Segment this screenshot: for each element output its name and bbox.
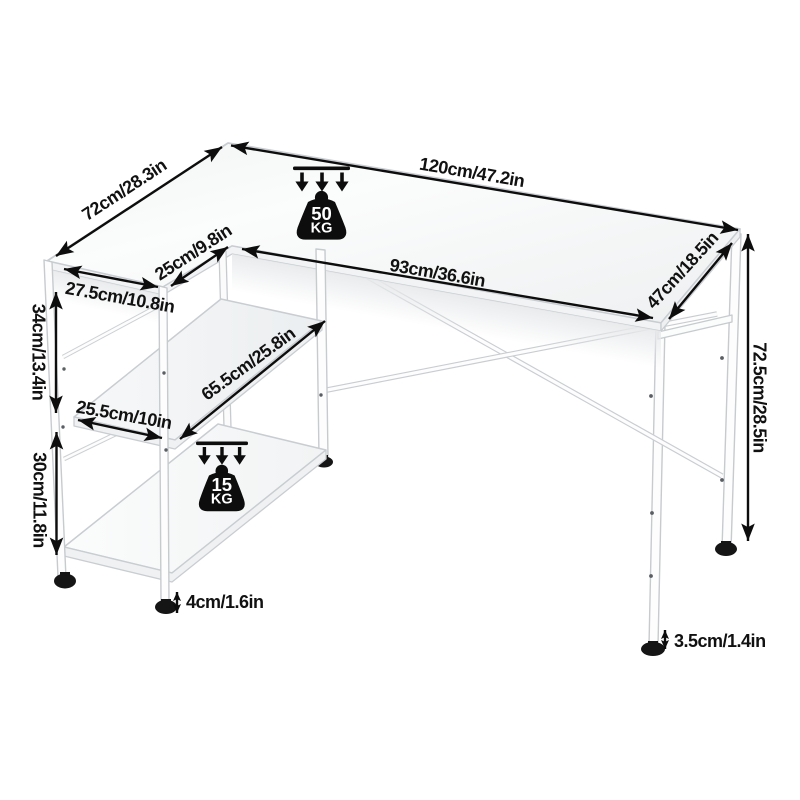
svg-text:3.5cm/1.4in: 3.5cm/1.4in bbox=[674, 631, 766, 651]
svg-text:4cm/1.6in: 4cm/1.6in bbox=[186, 592, 264, 612]
svg-text:34cm/13.4in: 34cm/13.4in bbox=[29, 304, 49, 401]
svg-text:KG: KG bbox=[311, 221, 333, 237]
svg-text:30cm/11.8in: 30cm/11.8in bbox=[30, 452, 50, 548]
svg-text:KG: KG bbox=[211, 492, 233, 508]
svg-text:72.5cm/28.5in: 72.5cm/28.5in bbox=[750, 342, 770, 453]
